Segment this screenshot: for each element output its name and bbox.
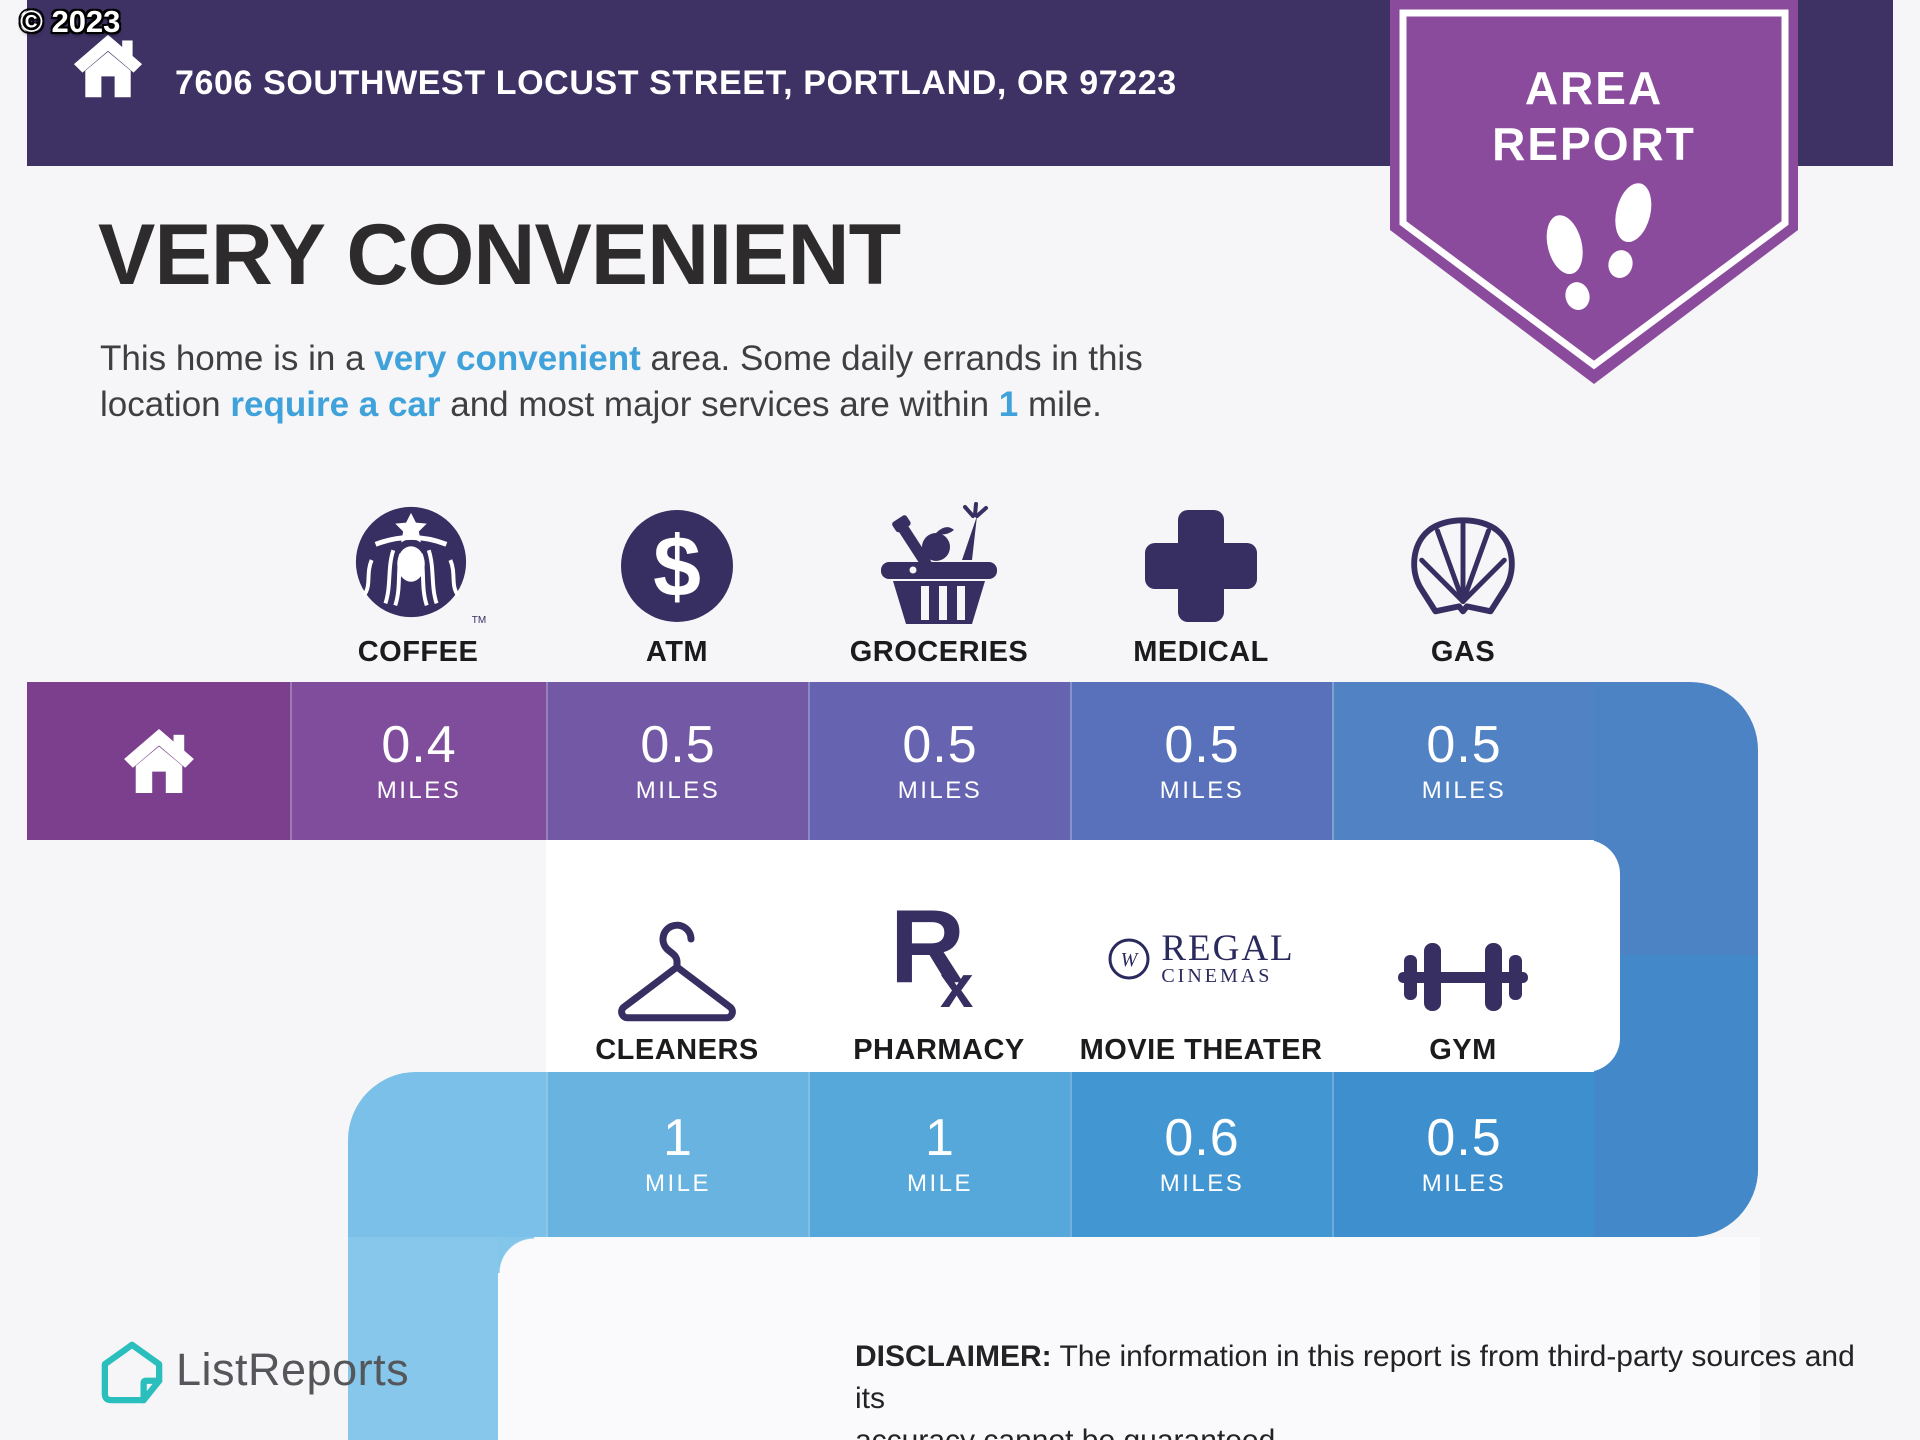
- rx-letter-x: x: [940, 952, 973, 1021]
- distance-unit: MILE: [907, 1170, 973, 1198]
- distance-value: 0.6: [1164, 1111, 1239, 1165]
- amenity-atm: $ ATM: [557, 496, 797, 669]
- distance-cell-coffee: 0.4 MILES: [290, 682, 546, 840]
- summary-part: and most major services are within: [441, 385, 999, 424]
- hanger-icon: [610, 918, 744, 1024]
- home-icon: [123, 729, 195, 793]
- home-cell: [27, 682, 290, 840]
- amenity-label: COFFEE: [298, 636, 538, 669]
- amenity-pharmacy: R x PHARMACY: [819, 894, 1059, 1067]
- distance-unit: MILES: [1422, 777, 1507, 805]
- amenity-coffee: TM COFFEE: [298, 496, 538, 669]
- amenity-gas: GAS: [1343, 496, 1583, 669]
- amenity-label: PHARMACY: [819, 1034, 1059, 1067]
- amenity-label: GYM: [1343, 1034, 1583, 1067]
- summary-highlight: require a car: [230, 385, 440, 424]
- disclaimer-line2: accuracy cannot be guaranteed.: [855, 1424, 1284, 1440]
- grocery-basket-icon: [873, 502, 1005, 626]
- distance-cell-movie-theater: 0.6 MILES: [1070, 1072, 1332, 1237]
- starbucks-siren-icon: [350, 502, 472, 626]
- regal-cinemas-logo: W REGAL CINEMAS: [1107, 932, 1294, 986]
- amenity-cleaners: CLEANERS: [557, 894, 797, 1067]
- amenity-label: GAS: [1343, 636, 1583, 669]
- distance-value: 0.5: [1426, 1111, 1501, 1165]
- distance-value: 0.5: [1426, 718, 1501, 772]
- summary-highlight: very convenient: [374, 339, 641, 378]
- distance-unit: MILES: [898, 777, 983, 805]
- distance-cell-pharmacy: 1 MILE: [808, 1072, 1070, 1237]
- band-corner-fillet: [498, 1237, 534, 1273]
- distance-value: 1: [925, 1111, 955, 1165]
- distance-cell-cleaners: 1 MILE: [546, 1072, 808, 1237]
- distance-cell-gym: 0.5 MILES: [1332, 1072, 1594, 1237]
- summary-highlight: 1: [999, 385, 1018, 424]
- home-icon: [73, 34, 143, 98]
- dumbbell-icon: [1396, 930, 1530, 1024]
- amenity-medical: MEDICAL: [1081, 496, 1321, 669]
- summary-part: This home is in a: [100, 339, 374, 378]
- distance-unit: MILES: [1422, 1170, 1507, 1198]
- amenity-label: MEDICAL: [1081, 636, 1321, 669]
- area-report-page: 7606 SOUTHWEST LOCUST STREET, PORTLAND, …: [0, 0, 1920, 1440]
- distance-unit: MILES: [377, 777, 462, 805]
- medical-cross-icon: [1141, 506, 1261, 626]
- property-address: 7606 SOUTHWEST LOCUST STREET, PORTLAND, …: [175, 0, 1177, 166]
- summary-text: This home is in a very convenient area. …: [100, 336, 1220, 428]
- regal-wordmark-sub: CINEMAS: [1161, 966, 1294, 986]
- distance-unit: MILES: [636, 777, 721, 805]
- badge-title-line2: REPORT: [1492, 118, 1696, 170]
- distance-value: 0.4: [381, 718, 456, 772]
- svg-text:W: W: [1121, 949, 1140, 971]
- copyright-watermark: © 2023: [20, 4, 120, 40]
- summary-part: area. Some daily errands in this: [641, 339, 1143, 378]
- dollar-circle-icon: $: [617, 506, 737, 626]
- distance-band-row2: 1 MILE 1 MILE 0.6 MILES 0.5 MILES: [348, 1072, 1594, 1237]
- listreports-wordmark: ListReports: [176, 1344, 409, 1396]
- distance-cell-atm: 0.5 MILES: [546, 682, 808, 840]
- disclaimer-text: DISCLAIMER: The information in this repo…: [855, 1336, 1865, 1440]
- rx-icon: R x: [884, 902, 994, 1024]
- band-curve-cell: [348, 1072, 546, 1237]
- distance-band-row1: 0.4 MILES 0.5 MILES 0.5 MILES 0.5 MILES …: [27, 682, 1594, 840]
- amenity-movie-theater: W REGAL CINEMAS MOVIE THEATER: [1051, 894, 1351, 1067]
- amenity-label: ATM: [557, 636, 797, 669]
- regal-wordmark: REGAL: [1161, 932, 1294, 966]
- summary-part: mile.: [1018, 385, 1102, 424]
- badge-title-line1: AREA: [1525, 62, 1663, 114]
- listreports-logo-icon: [100, 1340, 164, 1404]
- shell-icon: [1402, 514, 1524, 626]
- amenity-label: CLEANERS: [557, 1034, 797, 1067]
- svg-text:$: $: [653, 519, 701, 615]
- distance-unit: MILES: [1160, 1170, 1245, 1198]
- summary-part: location: [100, 385, 230, 424]
- amenity-gym: GYM: [1343, 894, 1583, 1067]
- distance-value: 0.5: [640, 718, 715, 772]
- area-report-badge: AREA REPORT: [1390, 0, 1798, 388]
- distance-unit: MILES: [1160, 777, 1245, 805]
- amenity-label: MOVIE THEATER: [1051, 1034, 1351, 1067]
- distance-value: 0.5: [1164, 718, 1239, 772]
- amenity-label: GROCERIES: [819, 636, 1059, 669]
- page-title: VERY CONVENIENT: [98, 206, 900, 305]
- regal-emblem-icon: W: [1107, 937, 1151, 981]
- trademark-mark: TM: [472, 615, 486, 626]
- amenity-groceries: GROCERIES: [819, 496, 1059, 669]
- distance-value: 1: [663, 1111, 693, 1165]
- distance-cell-medical: 0.5 MILES: [1070, 682, 1332, 840]
- distance-unit: MILE: [645, 1170, 711, 1198]
- disclaimer-label: DISCLAIMER:: [855, 1340, 1052, 1373]
- distance-cell-groceries: 0.5 MILES: [808, 682, 1070, 840]
- distance-cell-gas: 0.5 MILES: [1332, 682, 1594, 840]
- badge-banner-shape: [1390, 0, 1798, 384]
- distance-value: 0.5: [902, 718, 977, 772]
